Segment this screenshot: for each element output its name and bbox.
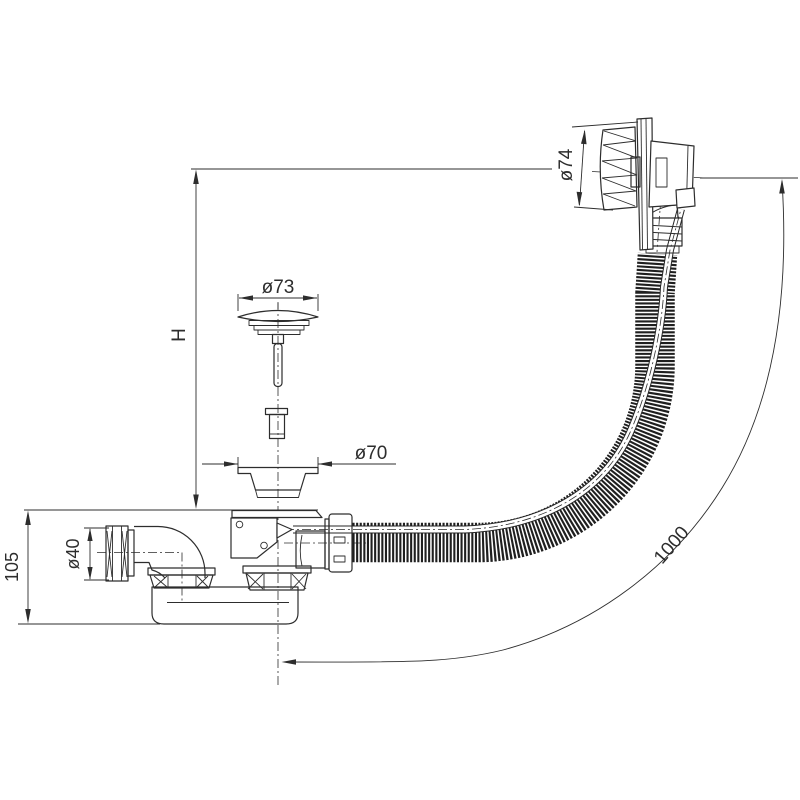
nut-slot [334,537,345,543]
overflow-head [600,118,695,250]
dim-curve [284,181,784,662]
arrow-up [87,528,92,541]
dim-height-h: H [169,170,199,510]
corrugated-hose-body [353,254,658,543]
arrow-left [282,659,297,665]
flexible-hose [285,201,682,543]
plug-disc-3 [258,330,300,335]
bath-waste-technical-drawing: H 105 ø40 ø73 ø70 [0,0,800,800]
arrow-up [581,130,587,145]
cable-channel [293,209,681,530]
inlet-elbow [106,526,205,581]
bottom-trap [148,568,298,624]
dim-trap-depth-105: 105 [2,511,31,624]
arrow-left [239,295,253,300]
screw-body [270,415,285,439]
inlet-nut-facets [150,575,213,588]
cable-cone [277,523,292,538]
dim-label-105: 105 [2,552,22,582]
arrow-down [25,609,31,624]
arrow-right [303,295,317,300]
technical-drawing-page: H 105 ø40 ø73 ø70 [0,0,800,800]
dim-inlet-40: ø40 [63,528,109,580]
arrow-up [193,170,199,185]
elbow-inner-profile [134,563,165,579]
slip-nut-band [243,566,311,573]
trap-body [152,587,298,624]
dim-label-70: ø70 [355,443,388,464]
arrow-down [87,567,92,580]
dim-hose-length-1000: 1000 [282,179,785,665]
screw-head [266,409,288,415]
centerlines [97,172,705,689]
outlet-inner-arc [300,535,302,566]
mechanism-cover [231,518,277,558]
dim-label-h: H [169,328,190,342]
nut-slot [334,556,345,562]
waste-tee [231,511,352,591]
cable-gland-block [676,188,695,208]
dim-label-40: ø40 [63,538,83,569]
dim-label-1000: 1000 [650,523,694,569]
arrow-up [779,179,785,194]
dim-label-73: ø73 [262,277,295,298]
cable-channel-outline [293,209,681,530]
plug-disc-2 [254,326,304,331]
arrow-left-in [318,461,332,466]
tee-flange-plate [232,511,322,518]
arrow-up [25,511,31,526]
elbow-collar [128,530,134,576]
arrow-down [577,192,583,207]
ext-line-top [572,122,638,127]
dim-label-74: ø74 [556,148,577,181]
arrow-down [193,495,199,510]
arrow-right-in [224,461,238,466]
dim-flange-70: ø70 [202,443,396,470]
cable-centerline [285,209,681,530]
